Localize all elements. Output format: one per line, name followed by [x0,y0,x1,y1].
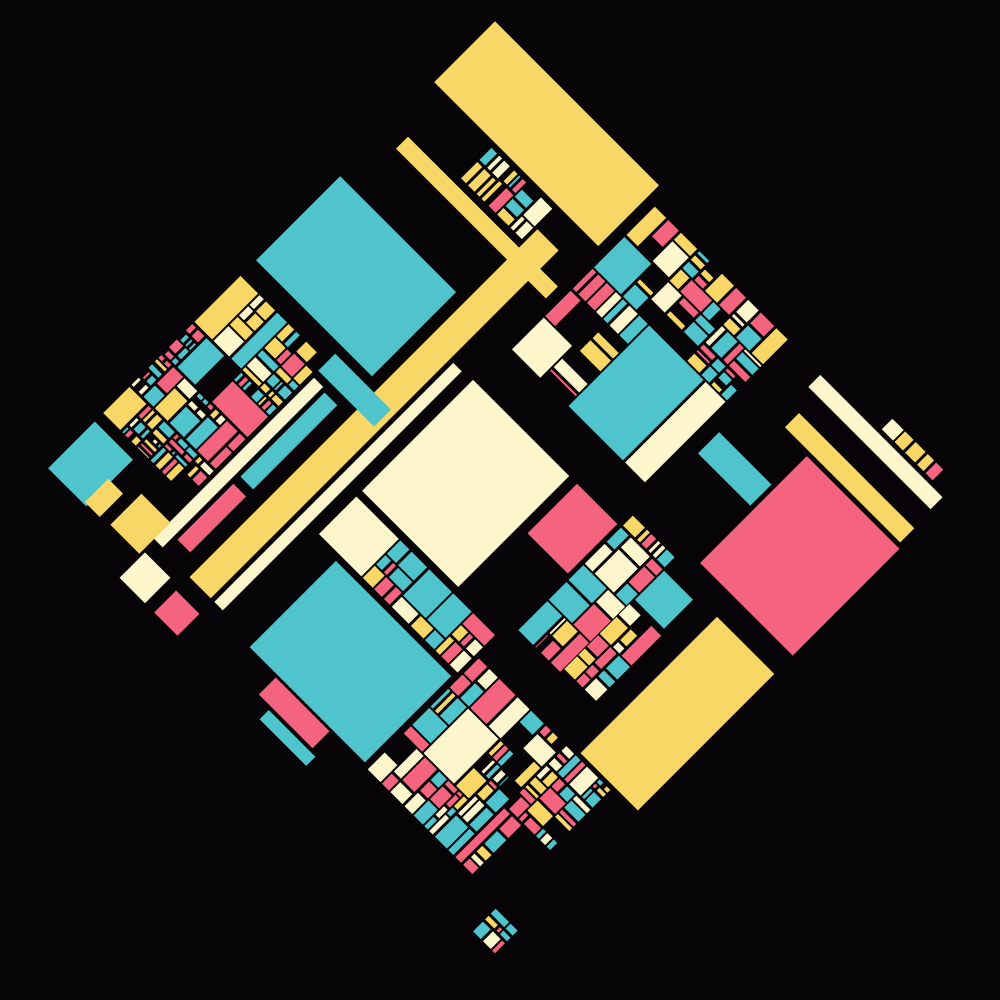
block-yellow-bottomright [581,617,774,810]
mosaic-cell [721,384,737,400]
mosaic-cell [158,444,162,448]
mosaic-cell [546,291,581,326]
mosaic-cell [173,434,179,440]
mosaic-cell [457,791,462,796]
strip-teal-right [698,432,772,506]
mosaic-cell [593,784,598,789]
mosaic-cell [125,430,133,438]
mosaic-cell [131,378,141,388]
mosaic-cell [546,732,558,744]
mosaic-cell [164,360,171,367]
bit-cream-bottomleft [120,552,170,602]
mosaic-cell [159,355,166,362]
mosaic-cell [604,787,610,793]
mosaic-cell [278,385,292,399]
mosaic-cell [289,381,299,391]
mosaic-cell [597,780,603,786]
mosaic-cell [208,404,215,411]
rotated-mondrian-square [28,21,961,954]
mosaic-cell [172,451,176,455]
mosaic-cell [202,399,208,405]
mosaic-cell [153,439,158,444]
artwork-stage [0,0,1000,1000]
mosaic-cell [667,311,686,330]
mosaic-cell [197,393,204,400]
mosaic-cell [146,375,156,385]
bit-pink-bottomleft [154,591,199,636]
mosaic-cell [165,351,174,360]
mosaic-cell [172,358,179,365]
mosaic-cell [260,383,270,393]
